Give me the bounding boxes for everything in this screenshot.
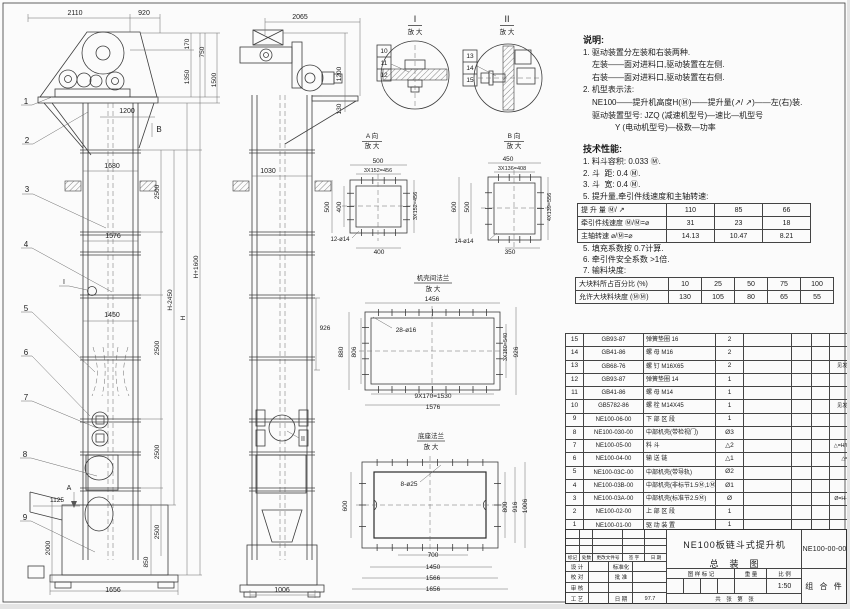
- bom-cell: [812, 440, 830, 453]
- note-line: 5. 提升量,牵引件线速度和主轴转速:: [583, 191, 845, 203]
- bom-cell: 9: [566, 413, 584, 426]
- bom-cell: [812, 413, 830, 426]
- perf-value: 14.13: [667, 230, 715, 243]
- dim-label: II: [301, 436, 305, 443]
- dim-label: 放 大: [365, 141, 380, 150]
- dim-label: 2000: [45, 540, 52, 555]
- dim-label: 3X152=456: [364, 168, 392, 174]
- note-line: 5. 填充系数按 0.7计算.: [583, 243, 845, 254]
- bom-cell: 6: [566, 453, 584, 466]
- bom-cell: NE100-04-00: [584, 453, 644, 466]
- dim-label: 2: [25, 136, 30, 145]
- performance-table: 提 升 量 Ⓜ/ ↗1108566牵引件线速度 Ⓜ/Ⓜ=⌀312318主轴转速 …: [577, 203, 811, 243]
- note-line: Y (电动机型号)—极数—功率: [583, 122, 845, 135]
- weight-value: [734, 578, 767, 594]
- dim-label: 1576: [105, 233, 121, 240]
- bom-cell: NE100-02-00: [584, 506, 644, 519]
- dim-label: 机壳间法兰: [417, 273, 450, 282]
- dim-label: 放 大: [500, 27, 515, 36]
- dim-label: 放 大: [507, 141, 522, 150]
- bom-cell: NE100-03C-00: [584, 466, 644, 479]
- lump-value: 100: [801, 278, 834, 291]
- bom-cell: [812, 360, 830, 373]
- signature-cell: 日 期: [608, 592, 633, 604]
- bom-cell: [812, 400, 830, 413]
- bom-cell: 螺 钉 M16X65: [644, 360, 716, 373]
- dim-label: 4: [24, 240, 29, 249]
- dim-label: 9: [23, 513, 28, 522]
- bom-cell: 中部机壳(非标节1.5Ⓜ,1Ⓜ): [644, 479, 716, 492]
- notes-title: 技术性能:: [583, 144, 845, 156]
- dim-label: 放 大: [408, 27, 423, 36]
- dim-label: 400: [336, 201, 343, 212]
- dim-label: 350: [505, 249, 516, 256]
- dim-label: 600: [342, 500, 349, 511]
- bom-cell: 中部机壳(带检视门): [644, 426, 716, 439]
- bom-cell: [792, 506, 812, 519]
- bom-cell: 7: [566, 440, 584, 453]
- dim-label: 3X180=540: [503, 333, 509, 361]
- dim-label: 916: [512, 501, 519, 512]
- bom-row: 14GB41-86螺 母 M162: [566, 347, 850, 360]
- bom-cell: 11: [566, 387, 584, 400]
- bom-cell: 输 送 链: [644, 453, 716, 466]
- bom-row: 9NE100-06-00下 部 区 段1: [566, 413, 850, 426]
- dim-label: 850: [143, 556, 150, 567]
- dim-label: 500: [464, 201, 471, 212]
- bom-table: 15GB93-87弹簧垫圈 16214GB41-86螺 母 M16213GB68…: [565, 333, 850, 546]
- bom-cell: 4: [566, 479, 584, 492]
- dim-label: 500: [324, 201, 331, 212]
- tech-notes-block-2: 5. 填充系数按 0.7计算.6. 牵引件安全系数 >1倍.7. 输料块度:: [583, 243, 845, 276]
- dim-label: 4X139=556: [547, 193, 553, 221]
- bom-row: 13GB68-76螺 钉 M16X652见发货清单: [566, 360, 850, 373]
- bom-cell: [792, 400, 812, 413]
- mark-box-3: [700, 578, 718, 594]
- bom-cell: [792, 413, 812, 426]
- dimension-labels: 2110920170750135015001200B16802500250025…: [23, 10, 553, 594]
- dim-label: 1125: [50, 497, 64, 504]
- notes-title: 说明:: [583, 34, 845, 47]
- dim-label: I: [414, 14, 417, 24]
- drawing-sheet: 2110920170750135015001200B16802500250025…: [0, 0, 850, 609]
- bom-cell: 螺 栓 M14X45: [644, 400, 716, 413]
- dim-label: II: [504, 14, 509, 24]
- bom-cell: GB41-86: [584, 387, 644, 400]
- bom-cell: [744, 334, 792, 347]
- dim-label: H+1600: [193, 255, 200, 278]
- bom-cell: NE100-05-00: [584, 440, 644, 453]
- bom-cell: [744, 347, 792, 360]
- bom-cell: [792, 440, 812, 453]
- bom-cell: [792, 479, 812, 492]
- perf-value: 85: [715, 204, 763, 217]
- bom-cell: [744, 453, 792, 466]
- bom-cell: [744, 426, 792, 439]
- bom-cell: [744, 373, 792, 386]
- dim-label: 926: [513, 346, 520, 357]
- dim-label: 10: [380, 48, 388, 55]
- dim-label: 1006: [274, 587, 290, 594]
- dim-label: 1500: [211, 72, 218, 87]
- bom-cell: 2: [716, 334, 744, 347]
- bom-cell: [792, 493, 812, 506]
- lump-row: 允许大块料块度 (ⓂⓂ)130105806555: [576, 291, 834, 304]
- bom-cell: 螺 母 M14: [644, 387, 716, 400]
- dim-label: 920: [138, 10, 150, 17]
- bom-cell: 弹簧垫圈 16: [644, 334, 716, 347]
- dim-label: 1680: [104, 163, 120, 170]
- mark-box-1: [666, 578, 684, 594]
- bom-row: 7NE100-05-00料 斗△2△=H/0.2+5.75: [566, 440, 850, 453]
- perf-label: 牵引件线速度 Ⓜ/Ⓜ=⌀: [578, 217, 667, 230]
- bom-row: 5NE100-03C-00中部机壳(带导轨)Ø2: [566, 466, 850, 479]
- bom-cell: 10: [566, 400, 584, 413]
- mark-box-4: [717, 578, 735, 594]
- scale-value: 1:50: [766, 578, 802, 594]
- dim-label: 1576: [426, 404, 441, 411]
- dim-label: 底座法兰: [418, 431, 445, 440]
- bom-cell: 2: [716, 360, 744, 373]
- bom-cell: [744, 400, 792, 413]
- dim-label: 1450: [104, 312, 120, 319]
- bom-cell: GB93-87: [584, 334, 644, 347]
- paper-edge-bottom: [0, 604, 850, 609]
- part-classification: 组 合 件: [801, 568, 847, 604]
- bom-cell: [812, 426, 830, 439]
- bom-cell: 弹簧垫圈 14: [644, 373, 716, 386]
- note-line: 1. 料斗容积: 0.033 Ⓜ.: [583, 156, 845, 168]
- bom-cell: 15: [566, 334, 584, 347]
- bom-cell: NE100-03A-00: [584, 493, 644, 506]
- perf-value: 66: [763, 204, 811, 217]
- bom-cell: [812, 347, 830, 360]
- dim-label: 1200: [336, 66, 343, 81]
- lump-value: 65: [768, 291, 801, 304]
- dim-label: 3X152=456: [413, 192, 419, 220]
- front-view: [28, 32, 178, 588]
- note-line: 右装——面对进料口,驱动装置在右侧.: [583, 72, 845, 85]
- bom-cell: [792, 453, 812, 466]
- bom-cell: GB41-86: [584, 347, 644, 360]
- dim-label: 6: [24, 348, 29, 357]
- bom-cell: Ø: [716, 493, 744, 506]
- bom-cell: [812, 334, 830, 347]
- bom-row: 11GB41-86螺 母 M141: [566, 387, 850, 400]
- bom-row: 15GB93-87弹簧垫圈 162: [566, 334, 850, 347]
- dim-label: B: [156, 125, 161, 134]
- bom-cell: [744, 506, 792, 519]
- sheet-count: 共 张 第 张: [666, 593, 802, 604]
- bom-cell: NE100-06-00: [584, 413, 644, 426]
- bom-cell: NE100-03B-00: [584, 479, 644, 492]
- drawing-title: NE100板链斗式提升机: [666, 530, 802, 558]
- perf-row: 牵引件线速度 Ⓜ/Ⓜ=⌀312318: [578, 217, 811, 230]
- lump-value: 10: [669, 278, 702, 291]
- dim-label: I: [63, 279, 65, 286]
- note-line: 2. 斗 距: 0.4 Ⓜ.: [583, 168, 845, 180]
- bom-row: 6NE100-04-00输 送 链△1△=△X4: [566, 453, 850, 466]
- dim-label: 2500: [154, 524, 161, 539]
- dim-label: 12-ø14: [330, 237, 350, 243]
- bom-cell: [744, 413, 792, 426]
- dim-label: 500: [373, 158, 384, 165]
- bom-cell: [812, 506, 830, 519]
- bom-cell: 1: [716, 400, 744, 413]
- bom-cell: 14: [566, 347, 584, 360]
- dim-label: 2065: [292, 14, 308, 21]
- note-line: 驱动装置型号: JZQ (减速机型号)—速比—机型号: [583, 110, 845, 123]
- bom-row: 3NE100-03A-00中部机壳(标准节2.5Ⓜ)ØØ=H-3.15/2.5: [566, 493, 850, 506]
- title-block: NE100板链斗式提升机 总 装 图 图 样 标 记 重 量 比 例 1:50 …: [565, 529, 847, 604]
- bom-cell: GB5782-86: [584, 400, 644, 413]
- drawing-number: NE100-00-00: [801, 530, 847, 568]
- dim-label: 5: [24, 304, 29, 313]
- note-line: NE100——提升机高度H(Ⓜ)——提升量(↗/ ↗)——左(右)装.: [583, 97, 845, 110]
- dim-label: 3X136=408: [498, 166, 526, 172]
- bom-cell: [792, 347, 812, 360]
- note-line: 左装——面对进料口,驱动装置在左侧.: [583, 59, 845, 72]
- signature-cell: 97.7: [632, 592, 667, 604]
- dim-label: 12: [380, 72, 388, 79]
- perf-row: 主轴转速 ⌀/Ⓜ=⌀14.1310.478.21: [578, 230, 811, 243]
- perf-value: 110: [667, 204, 715, 217]
- dim-label: 8: [23, 450, 28, 459]
- lump-value: 80: [735, 291, 768, 304]
- lump-label: 允许大块料块度 (ⓂⓂ): [576, 291, 669, 304]
- dim-label: 9X170=1530: [414, 393, 451, 400]
- lump-value: 55: [801, 291, 834, 304]
- bom-cell: 中部机壳(标准节2.5Ⓜ): [644, 493, 716, 506]
- perf-value: 18: [763, 217, 811, 230]
- notes-block: 说明:1. 驱动装置分左装和右装两种.左装——面对进料口,驱动装置在左侧.右装—…: [583, 34, 845, 135]
- dim-label: 800: [502, 501, 509, 512]
- note-line: 1. 驱动装置分左装和右装两种.: [583, 47, 845, 60]
- mark-box-2: [683, 578, 701, 594]
- dim-label: 8-ø25: [401, 481, 418, 488]
- bom-cell: [792, 426, 812, 439]
- dim-label: 2500: [154, 184, 161, 199]
- perf-value: 23: [715, 217, 763, 230]
- bom-cell: [744, 440, 792, 453]
- dim-label: 11: [381, 60, 388, 67]
- bom-cell: 上 部 区 段: [644, 506, 716, 519]
- lump-value: 105: [702, 291, 735, 304]
- bom-cell: GB68-76: [584, 360, 644, 373]
- dim-label: 2110: [67, 10, 82, 17]
- dim-label: 400: [374, 249, 385, 256]
- bom-cell: 1: [716, 413, 744, 426]
- bom-cell: GB93-87: [584, 373, 644, 386]
- lump-size-table: 大块料所占百分比 (%)10255075100允许大块料块度 (ⓂⓂ)13010…: [575, 277, 834, 304]
- bom-cell: 2: [566, 506, 584, 519]
- bom-cell: Ø2: [716, 466, 744, 479]
- bom-cell: [792, 466, 812, 479]
- perf-value: 8.21: [763, 230, 811, 243]
- note-line: 2. 机型表示法:: [583, 84, 845, 97]
- bom-cell: [744, 360, 792, 373]
- dim-label: 750: [199, 46, 206, 57]
- perf-label: 提 升 量 Ⓜ/ ↗: [578, 204, 667, 217]
- dim-label: 880: [338, 346, 345, 357]
- bom-cell: [792, 334, 812, 347]
- bom-cell: △2: [716, 440, 744, 453]
- dim-label: B 向: [508, 131, 521, 140]
- bom-row: 2NE100-02-00上 部 区 段1: [566, 506, 850, 519]
- lump-value: 75: [768, 278, 801, 291]
- perf-value: 31: [667, 217, 715, 230]
- lump-value: 130: [669, 291, 702, 304]
- dim-label: 15: [466, 77, 474, 84]
- dim-label: 700: [428, 552, 439, 559]
- dim-label: 1006: [522, 498, 529, 513]
- dim-label: 7: [24, 393, 29, 402]
- bom-cell: 12: [566, 373, 584, 386]
- bom-cell: [812, 466, 830, 479]
- bom-cell: 1: [716, 387, 744, 400]
- bom-cell: [812, 387, 830, 400]
- revision-blank-cell: [622, 530, 645, 538]
- dim-label: H-2450: [167, 289, 174, 311]
- dim-label: 1: [24, 97, 29, 106]
- revision-blank-cell: [566, 530, 579, 538]
- dim-label: 1030: [260, 168, 276, 175]
- lump-label: 大块料所占百分比 (%): [576, 278, 669, 291]
- dim-label: 2500: [154, 444, 161, 459]
- detail-II: [463, 26, 542, 113]
- bom-row: 12GB93-87弹簧垫圈 141: [566, 373, 850, 386]
- signature-cell: [588, 592, 609, 604]
- note-line: 3. 斗 宽: 0.4 Ⓜ.: [583, 179, 845, 191]
- bom-cell: 5: [566, 466, 584, 479]
- bom-cell: 中部机壳(带导轨): [644, 466, 716, 479]
- bom-cell: [744, 466, 792, 479]
- dim-label: 1656: [426, 586, 441, 593]
- bom-cell: 螺 母 M16: [644, 347, 716, 360]
- bom-cell: △1: [716, 453, 744, 466]
- dim-label: 1450: [426, 564, 441, 571]
- signature-cell: 工 艺: [566, 592, 588, 604]
- note-line: 6. 牵引件安全系数 >1倍.: [583, 254, 845, 265]
- bom-cell: 2: [716, 347, 744, 360]
- bom-cell: 1: [716, 506, 744, 519]
- dim-label: 806: [351, 346, 358, 357]
- bom-row: 10GB5782-86螺 栓 M14X451见发货清单: [566, 400, 850, 413]
- revision-blank-cell: [579, 530, 593, 538]
- dim-label: 28-ø16: [396, 327, 417, 334]
- dim-label: 14: [466, 65, 474, 72]
- perf-value: 10.47: [715, 230, 763, 243]
- bom-row: 4NE100-03B-00中部机壳(非标节1.5Ⓜ,1Ⓜ)Ø1: [566, 479, 850, 492]
- dim-label: 2500: [154, 340, 161, 355]
- bom-cell: 料 斗: [644, 440, 716, 453]
- bom-cell: 8: [566, 426, 584, 439]
- dim-label: 1566: [426, 575, 441, 582]
- dim-label: 3: [25, 185, 30, 194]
- perf-row: 提 升 量 Ⓜ/ ↗1108566: [578, 204, 811, 217]
- bom-cell: [812, 479, 830, 492]
- dim-label: 放 大: [426, 284, 441, 293]
- bom-cell: [812, 493, 830, 506]
- detail-I: [377, 26, 449, 110]
- bom-cell: [792, 373, 812, 386]
- bom-cell: [812, 453, 830, 466]
- revision-blank-cell: [644, 530, 667, 538]
- tech-notes-block: 技术性能:1. 料斗容积: 0.033 Ⓜ.2. 斗 距: 0.4 Ⓜ.3. 斗…: [583, 144, 845, 203]
- perf-label: 主轴转速 ⌀/Ⓜ=⌀: [578, 230, 667, 243]
- dim-label: A: [67, 485, 72, 492]
- note-line: 7. 输料块度:: [583, 265, 845, 276]
- dim-label: 14-ø14: [454, 239, 474, 245]
- bom-cell: NE100-030-00: [584, 426, 644, 439]
- bom-cell: [792, 360, 812, 373]
- dim-label: 926: [320, 325, 331, 332]
- dim-label: 1656: [105, 587, 121, 594]
- drawing-subtitle: 总 装 图: [666, 558, 802, 568]
- bom-cell: [744, 479, 792, 492]
- dim-label: 1200: [119, 108, 135, 115]
- bom-cell: 下 部 区 段: [644, 413, 716, 426]
- dim-label: 1350: [184, 69, 191, 84]
- lump-value: 25: [702, 278, 735, 291]
- dim-label: 600: [451, 201, 458, 212]
- bom-cell: [792, 387, 812, 400]
- dim-label: H: [180, 315, 187, 320]
- bom-cell: Ø3: [716, 426, 744, 439]
- front-view-dims: [20, 14, 220, 595]
- dim-label: 130: [336, 103, 343, 114]
- bom-row: 8NE100-030-00中部机壳(带检视门)Ø3: [566, 426, 850, 439]
- dim-label: 放 大: [424, 442, 439, 451]
- bolt-ticks: [347, 174, 544, 551]
- dim-label: 450: [503, 156, 514, 163]
- bom-cell: [744, 493, 792, 506]
- bom-cell: Ø1: [716, 479, 744, 492]
- dim-label: A 向: [366, 131, 378, 140]
- bom-cell: 13: [566, 360, 584, 373]
- bom-cell: [812, 373, 830, 386]
- revision-blank-cell: [592, 530, 623, 538]
- dim-label: 1456: [425, 296, 440, 303]
- bom-cell: 1: [716, 373, 744, 386]
- lump-value: 50: [735, 278, 768, 291]
- dim-label: 170: [184, 38, 191, 49]
- bom-cell: 3: [566, 493, 584, 506]
- lump-row: 大块料所占百分比 (%)10255075100: [576, 278, 834, 291]
- bom-cell: [744, 387, 792, 400]
- dim-label: 13: [466, 53, 474, 60]
